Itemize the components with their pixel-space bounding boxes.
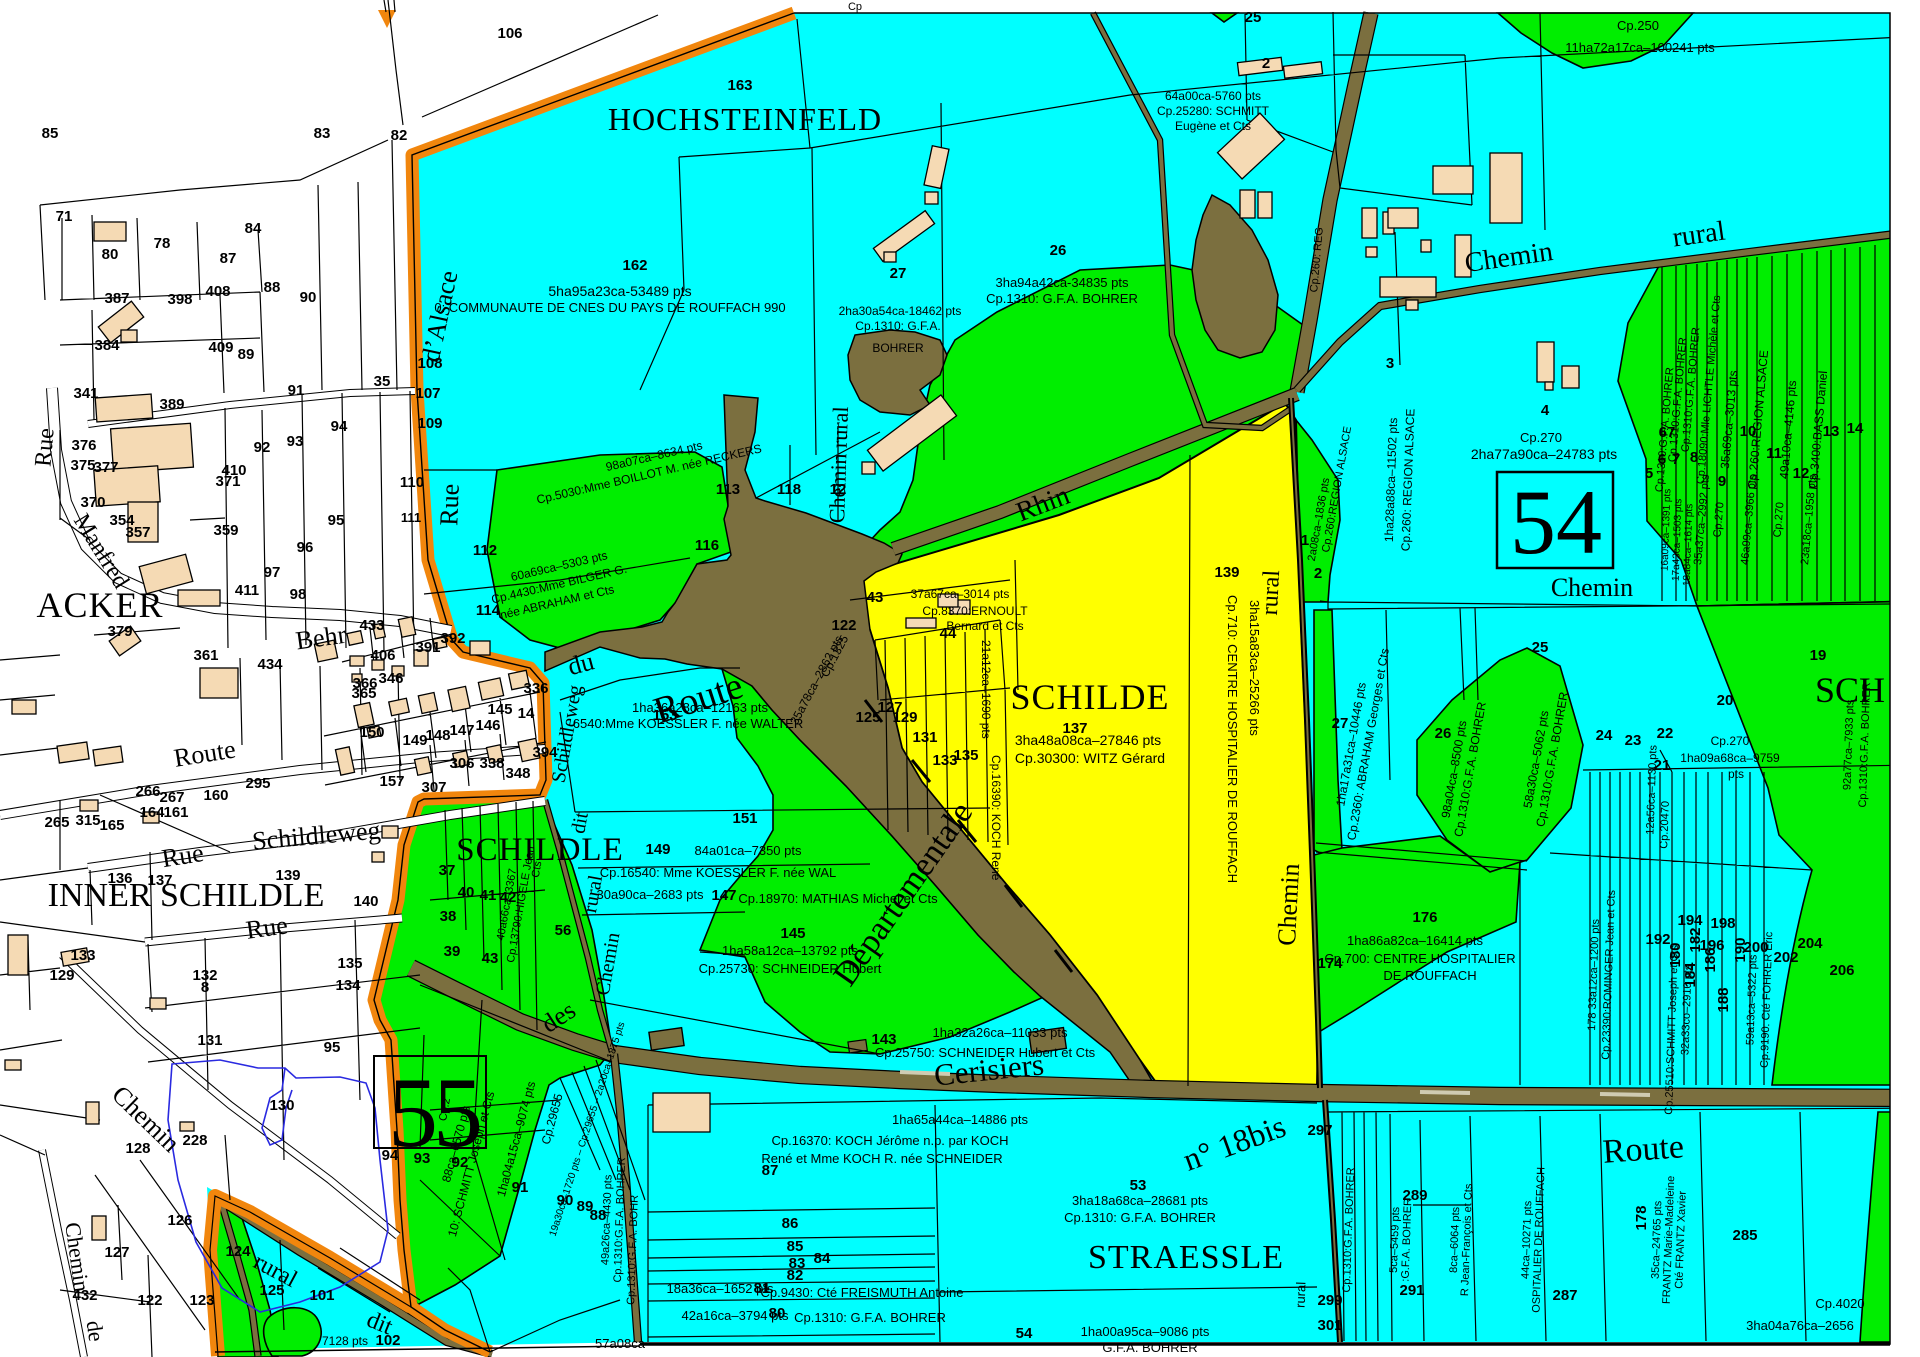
svg-text:98: 98 <box>290 586 307 603</box>
svg-text:307: 307 <box>421 779 446 796</box>
svg-text:20: 20 <box>1717 692 1734 709</box>
svg-text:Route: Route <box>1601 1128 1685 1171</box>
svg-text:135: 135 <box>337 955 362 972</box>
svg-text:43: 43 <box>867 589 884 606</box>
svg-text:297: 297 <box>1307 1122 1332 1139</box>
svg-text:109: 109 <box>417 415 442 432</box>
svg-text:137: 137 <box>147 872 172 889</box>
svg-text:127: 127 <box>104 1244 129 1261</box>
svg-text:1ha58a12ca–13792 pts: 1ha58a12ca–13792 pts <box>722 943 858 958</box>
svg-text:71: 71 <box>56 208 73 225</box>
svg-text:Cp.1310: G.F.A. BOHRER: Cp.1310: G.F.A. BOHRER <box>986 291 1138 306</box>
svg-text:67: 67 <box>1659 424 1676 441</box>
svg-text:371: 371 <box>215 473 240 490</box>
svg-text:57a08ca: 57a08ca <box>595 1336 646 1351</box>
svg-text:94: 94 <box>382 1147 399 1164</box>
svg-text:9: 9 <box>1718 473 1726 490</box>
svg-text:Cp.8370:ERNOULT: Cp.8370:ERNOULT <box>922 604 1028 618</box>
svg-text:Rue: Rue <box>244 910 290 945</box>
svg-text:Bernard et Cts: Bernard et Cts <box>946 619 1023 633</box>
svg-text:7: 7 <box>1672 451 1680 468</box>
svg-text:Cp.270: Cp.270 <box>1711 734 1750 748</box>
svg-text:124: 124 <box>225 1243 251 1260</box>
svg-text:111: 111 <box>401 510 421 525</box>
svg-text:145: 145 <box>780 925 805 942</box>
svg-text:11ha72a17ca–100241 pts: 11ha72a17ca–100241 pts <box>1565 40 1715 55</box>
svg-text:Chemin: Chemin <box>1272 863 1305 947</box>
svg-text:287: 287 <box>1552 1287 1577 1304</box>
svg-text:101: 101 <box>309 1287 334 1304</box>
svg-text:G.F.A. BOHRER: G.F.A. BOHRER <box>1102 1340 1197 1355</box>
svg-text:1ha65a44ca–14886 pts: 1ha65a44ca–14886 pts <box>892 1112 1028 1127</box>
svg-text:84: 84 <box>814 1250 831 1267</box>
svg-text:285: 285 <box>1732 1227 1757 1244</box>
svg-text:85: 85 <box>787 1238 804 1255</box>
svg-text:Chemin: Chemin <box>1551 573 1633 602</box>
svg-text:4: 4 <box>1541 402 1550 419</box>
svg-text:110: 110 <box>400 474 424 491</box>
svg-text:434: 434 <box>257 656 283 673</box>
svg-text:107: 107 <box>415 385 440 402</box>
svg-text:Cp.270: Cp.270 <box>1520 430 1562 445</box>
svg-text:165: 165 <box>99 817 124 834</box>
svg-text:346: 346 <box>378 670 403 687</box>
svg-text:37: 37 <box>439 862 456 879</box>
svg-text:375: 375 <box>70 457 95 474</box>
svg-text:338: 338 <box>479 755 504 772</box>
svg-text:379: 379 <box>107 623 132 640</box>
svg-text:83: 83 <box>314 125 331 142</box>
svg-text:432: 432 <box>72 1287 97 1304</box>
svg-text:Rue: Rue <box>434 483 464 526</box>
svg-text:198: 198 <box>1710 915 1735 932</box>
svg-text:Cp.18970: MATHIAS Michel et Ct: Cp.18970: MATHIAS Michel et Cts <box>738 891 938 906</box>
svg-text:140: 140 <box>353 893 378 910</box>
svg-text:136: 136 <box>107 870 132 887</box>
svg-text:37a67ca–3014 pts: 37a67ca–3014 pts <box>911 587 1010 601</box>
svg-text:134: 134 <box>335 977 361 994</box>
svg-text:131: 131 <box>197 1032 222 1049</box>
svg-text:3ha18a68ca–28681 pts: 3ha18a68ca–28681 pts <box>1072 1193 1208 1208</box>
svg-text:Cp.16370: KOCH Jérôme n.p.: Cp.16370: KOCH Jérôme n.p. par KOCH <box>772 1133 1009 1148</box>
svg-text:13: 13 <box>1823 423 1840 440</box>
svg-text:BOHRER: BOHRER <box>872 341 924 355</box>
svg-text:129: 129 <box>49 967 74 984</box>
svg-text:125: 125 <box>259 1282 284 1299</box>
svg-text:Cp.25280: SCHMITT: Cp.25280: SCHMITT <box>1157 104 1270 118</box>
svg-text:1ha09a68ca–9759: 1ha09a68ca–9759 <box>1680 751 1780 765</box>
svg-text:147: 147 <box>449 722 474 739</box>
svg-text:94: 94 <box>331 418 348 435</box>
svg-text:131: 131 <box>912 729 937 746</box>
svg-text:39: 39 <box>444 943 461 960</box>
svg-text:389: 389 <box>159 396 184 413</box>
svg-text:18a36ca–1652 pts: 18a36ca–1652 pts <box>667 1281 774 1296</box>
svg-text:348: 348 <box>505 765 530 782</box>
svg-text:6540:Mme KOESSLER F. née WALTE: 6540:Mme KOESSLER F. née WALTER <box>573 716 803 731</box>
svg-text:Cp.4020: Cp.4020 <box>1815 1296 1864 1311</box>
svg-text:295: 295 <box>245 775 270 792</box>
svg-text:97: 97 <box>264 564 281 581</box>
svg-text:93: 93 <box>287 433 304 450</box>
svg-text:150: 150 <box>359 724 384 741</box>
svg-text:22: 22 <box>1657 725 1674 742</box>
svg-text:266: 266 <box>135 783 160 800</box>
svg-text:384: 384 <box>94 337 120 354</box>
svg-text:433: 433 <box>359 617 384 634</box>
svg-text:82: 82 <box>787 1267 804 1284</box>
svg-text:336: 336 <box>523 680 548 697</box>
svg-text:30a90ca–2683 pts: 30a90ca–2683 pts <box>597 887 704 902</box>
svg-text:315: 315 <box>75 812 100 829</box>
svg-text:408: 408 <box>205 283 230 300</box>
svg-text:192: 192 <box>1645 931 1670 948</box>
svg-text:145: 145 <box>487 701 512 718</box>
svg-text:26: 26 <box>1050 242 1067 259</box>
svg-text:84: 84 <box>245 220 262 237</box>
svg-text:196: 196 <box>1699 937 1724 954</box>
svg-text:406: 406 <box>370 647 395 664</box>
svg-text:116: 116 <box>695 537 719 554</box>
svg-text:306: 306 <box>449 755 474 772</box>
svg-text:95: 95 <box>328 512 345 529</box>
svg-text:82: 82 <box>391 127 408 144</box>
svg-text:Cp.250: Cp.250 <box>1617 18 1659 33</box>
svg-text:3ha04a76ca–2656: 3ha04a76ca–2656 <box>1746 1318 1854 1333</box>
svg-text:19: 19 <box>1810 647 1827 664</box>
svg-text:139: 139 <box>1214 564 1239 581</box>
svg-text:106: 106 <box>497 25 522 42</box>
svg-text:299: 299 <box>1317 1292 1342 1309</box>
svg-text:301: 301 <box>1317 1317 1342 1334</box>
svg-text:78: 78 <box>154 235 171 252</box>
svg-text:1ha00a95ca–9086 pts: 1ha00a95ca–9086 pts <box>1081 1324 1210 1339</box>
svg-text:14: 14 <box>1847 420 1864 437</box>
svg-text:139: 139 <box>275 867 300 884</box>
svg-text:80: 80 <box>102 246 119 263</box>
svg-text:Cp.1310: G.F.A. BOHRER: Cp.1310: G.F.A. BOHRER <box>1064 1210 1216 1225</box>
svg-text:376: 376 <box>71 437 96 454</box>
svg-text:Eugène et Cts: Eugène et Cts <box>1175 119 1251 133</box>
svg-text:89: 89 <box>238 346 255 363</box>
svg-text:178: 178 <box>1633 1205 1650 1230</box>
svg-text:359: 359 <box>213 522 238 539</box>
svg-text:370: 370 <box>80 494 105 511</box>
svg-text:Cp.1310: G.F.A.: Cp.1310: G.F.A. <box>855 319 940 333</box>
svg-text:2ha77a90ca–24783 pts: 2ha77a90ca–24783 pts <box>1471 446 1617 462</box>
svg-text:194: 194 <box>1677 912 1703 929</box>
svg-text:3ha94a42ca-34835 pts: 3ha94a42ca-34835 pts <box>995 275 1129 290</box>
svg-text:151: 151 <box>732 810 757 827</box>
svg-text:86: 86 <box>782 1215 799 1232</box>
svg-text:0: COMMUNAUTE DE CNES DU PAYS: 0: COMMUNAUTE DE CNES DU PAYS DE ROUFFAC… <box>434 300 785 315</box>
svg-text:265: 265 <box>44 814 69 831</box>
svg-text:23: 23 <box>1625 732 1642 749</box>
svg-text:122: 122 <box>137 1292 162 1309</box>
svg-text:95: 95 <box>324 1039 341 1056</box>
svg-text:54: 54 <box>1510 471 1602 573</box>
svg-text:42a16ca–3794 pts: 42a16ca–3794 pts <box>682 1308 789 1323</box>
svg-text:2ha30a54ca-18462 pts: 2ha30a54ca-18462 pts <box>839 304 962 318</box>
svg-text:1ha86a82ca–16414 pts: 1ha86a82ca–16414 pts <box>1347 933 1483 948</box>
svg-text:25: 25 <box>1532 639 1549 656</box>
svg-text:85: 85 <box>42 125 59 142</box>
svg-text:391: 391 <box>415 639 440 656</box>
svg-text:357: 357 <box>125 524 150 541</box>
svg-text:87: 87 <box>220 250 237 267</box>
svg-text:91: 91 <box>512 1179 529 1196</box>
svg-text:123: 123 <box>189 1292 214 1309</box>
svg-text:2: 2 <box>1314 565 1322 582</box>
svg-text:398: 398 <box>167 291 192 308</box>
svg-text:8: 8 <box>201 979 209 996</box>
svg-text:Chemin rural: Chemin rural <box>824 406 853 524</box>
svg-text:96: 96 <box>297 539 314 556</box>
svg-text:SCHILDE: SCHILDE <box>1011 677 1170 717</box>
svg-text:pts: pts <box>1728 767 1744 781</box>
svg-text:Cp.20470: Cp.20470 <box>1658 801 1672 849</box>
svg-text:Cp.25750: SCHNEIDER Hubert et: Cp.25750: SCHNEIDER Hubert et Cts <box>875 1045 1096 1060</box>
svg-text:27: 27 <box>890 265 907 282</box>
svg-text:202: 202 <box>1773 949 1798 966</box>
svg-text:147: 147 <box>711 887 736 904</box>
svg-text:40: 40 <box>458 884 475 901</box>
svg-text:118: 118 <box>777 481 801 498</box>
svg-text:409: 409 <box>208 339 233 356</box>
svg-text:164: 164 <box>139 804 165 821</box>
svg-text:149: 149 <box>645 841 670 858</box>
svg-text:92: 92 <box>254 439 271 456</box>
svg-text:12: 12 <box>830 481 847 498</box>
svg-text:387: 387 <box>104 290 129 307</box>
svg-text:148: 148 <box>425 727 450 744</box>
svg-text:361: 361 <box>193 647 218 664</box>
svg-text:204: 204 <box>1797 935 1823 952</box>
svg-text:122: 122 <box>831 617 856 634</box>
svg-text:126: 126 <box>167 1212 192 1229</box>
svg-text:54: 54 <box>1016 1325 1033 1342</box>
svg-text:Rue: Rue <box>30 427 59 468</box>
svg-text:176: 176 <box>1412 909 1437 926</box>
svg-text:1ha36a28ca–12163 pts: 1ha36a28ca–12163 pts <box>632 700 768 715</box>
svg-text:157: 157 <box>379 773 404 790</box>
svg-text:377: 377 <box>93 459 118 476</box>
svg-text:90: 90 <box>300 289 317 306</box>
svg-text:130: 130 <box>269 1097 294 1114</box>
svg-text:Cp.30300: WITZ Gérard: Cp.30300: WITZ Gérard <box>1015 750 1165 766</box>
svg-text:411: 411 <box>235 582 259 599</box>
svg-text:Cp.710: CENTRE HOSPITALIER D: Cp.710: CENTRE HOSPITALIER DE ROUFFACH <box>1225 595 1240 883</box>
svg-text:392: 392 <box>440 630 465 647</box>
svg-text:35: 35 <box>374 373 391 390</box>
svg-text:146: 146 <box>475 717 500 734</box>
svg-text:dit: dit <box>567 810 592 835</box>
svg-text:Cp: Cp <box>848 1 862 13</box>
svg-text:206: 206 <box>1829 962 1854 979</box>
svg-text:DE ROUFFACH: DE ROUFFACH <box>1383 968 1476 983</box>
svg-text:25: 25 <box>1245 9 1262 26</box>
svg-text:133: 133 <box>70 947 95 964</box>
svg-text:3ha48a08ca–27846 pts: 3ha48a08ca–27846 pts <box>1015 732 1161 748</box>
svg-text:162: 162 <box>622 257 647 274</box>
svg-text:rural: rural <box>1293 1281 1309 1308</box>
svg-text:129: 129 <box>892 709 917 726</box>
svg-text:6: 6 <box>1658 451 1666 468</box>
svg-text:Cp.1310: G.F.A. BOHRER: Cp.1310: G.F.A. BOHRER <box>794 1310 946 1325</box>
svg-text:3: 3 <box>1386 355 1394 372</box>
svg-text:228: 228 <box>182 1132 207 1149</box>
svg-text:24: 24 <box>1596 727 1613 744</box>
svg-text:ACKER: ACKER <box>36 585 163 625</box>
svg-text:84a01ca–7350 pts: 84a01ca–7350 pts <box>695 843 802 858</box>
svg-text:1ha32a26ca–11033 pts: 1ha32a26ca–11033 pts <box>933 1025 1068 1040</box>
svg-text:43: 43 <box>482 950 499 967</box>
svg-text:365: 365 <box>351 685 376 702</box>
svg-text:Cp.700: CENTRE HOSPITALIER: Cp.700: CENTRE HOSPITALIER <box>1324 951 1515 966</box>
svg-text:149: 149 <box>402 732 427 749</box>
svg-text:128: 128 <box>125 1140 150 1157</box>
svg-text:8: 8 <box>1690 449 1698 466</box>
svg-text:14: 14 <box>518 705 535 722</box>
svg-text:HOCHSTEINFELD: HOCHSTEINFELD <box>608 101 882 137</box>
svg-text:38: 38 <box>440 908 457 925</box>
svg-text:341: 341 <box>73 385 98 402</box>
svg-text:91: 91 <box>288 382 305 399</box>
svg-text:René et Mme KOCH R. née: René et Mme KOCH R. née SCHNEIDER <box>761 1151 1002 1166</box>
svg-text:Cp.16390: KOCH René: Cp.16390: KOCH René <box>989 755 1003 881</box>
svg-text:de: de <box>82 1319 110 1343</box>
svg-text:394: 394 <box>532 744 558 761</box>
svg-text:41: 41 <box>480 887 497 904</box>
svg-text:133: 133 <box>932 752 957 769</box>
svg-text:5: 5 <box>1645 465 1653 482</box>
svg-text:93: 93 <box>414 1150 431 1167</box>
svg-text:26: 26 <box>1435 725 1452 742</box>
svg-text:113: 113 <box>716 481 740 498</box>
svg-text:112: 112 <box>473 542 497 559</box>
svg-text:Cp.25730: SCHNEIDER Hubert: Cp.25730: SCHNEIDER Hubert <box>699 961 882 976</box>
svg-text:7128 pts: 7128 pts <box>322 1334 368 1348</box>
svg-text:88: 88 <box>264 279 281 296</box>
svg-text:10: 10 <box>1740 423 1757 440</box>
svg-text:STRAESSLE: STRAESSLE <box>1088 1239 1284 1276</box>
svg-text:5ha95a23ca-53489 pts: 5ha95a23ca-53489 pts <box>548 283 691 299</box>
svg-text:21a12ca–1690 pts: 21a12ca–1690 pts <box>979 640 993 739</box>
svg-text:Cp.9430: Cté FREISMUTH Antoi: Cp.9430: Cté FREISMUTH Antoine <box>760 1285 963 1300</box>
svg-text:188: 188 <box>1715 987 1732 1012</box>
svg-text:12: 12 <box>1793 465 1810 482</box>
svg-text:Cp.16540: Mme KOESSLER F. née: Cp.16540: Mme KOESSLER F. née WAL <box>600 865 837 880</box>
svg-text:11: 11 <box>1766 445 1782 462</box>
svg-text:291: 291 <box>1399 1282 1424 1299</box>
svg-text:108: 108 <box>417 355 442 372</box>
svg-text:161: 161 <box>163 804 188 821</box>
svg-text:56: 56 <box>555 922 572 939</box>
svg-text:102: 102 <box>375 1332 400 1349</box>
svg-text:125: 125 <box>855 709 880 726</box>
svg-text:160: 160 <box>203 787 228 804</box>
svg-text:53: 53 <box>1130 1177 1147 1194</box>
svg-text:2: 2 <box>1262 55 1270 72</box>
svg-text:64a00ca-5760 pts: 64a00ca-5760 pts <box>1165 89 1261 103</box>
svg-text:3ha15a83ca–25266 pts: 3ha15a83ca–25266 pts <box>1247 600 1262 736</box>
svg-text:163: 163 <box>727 77 752 94</box>
